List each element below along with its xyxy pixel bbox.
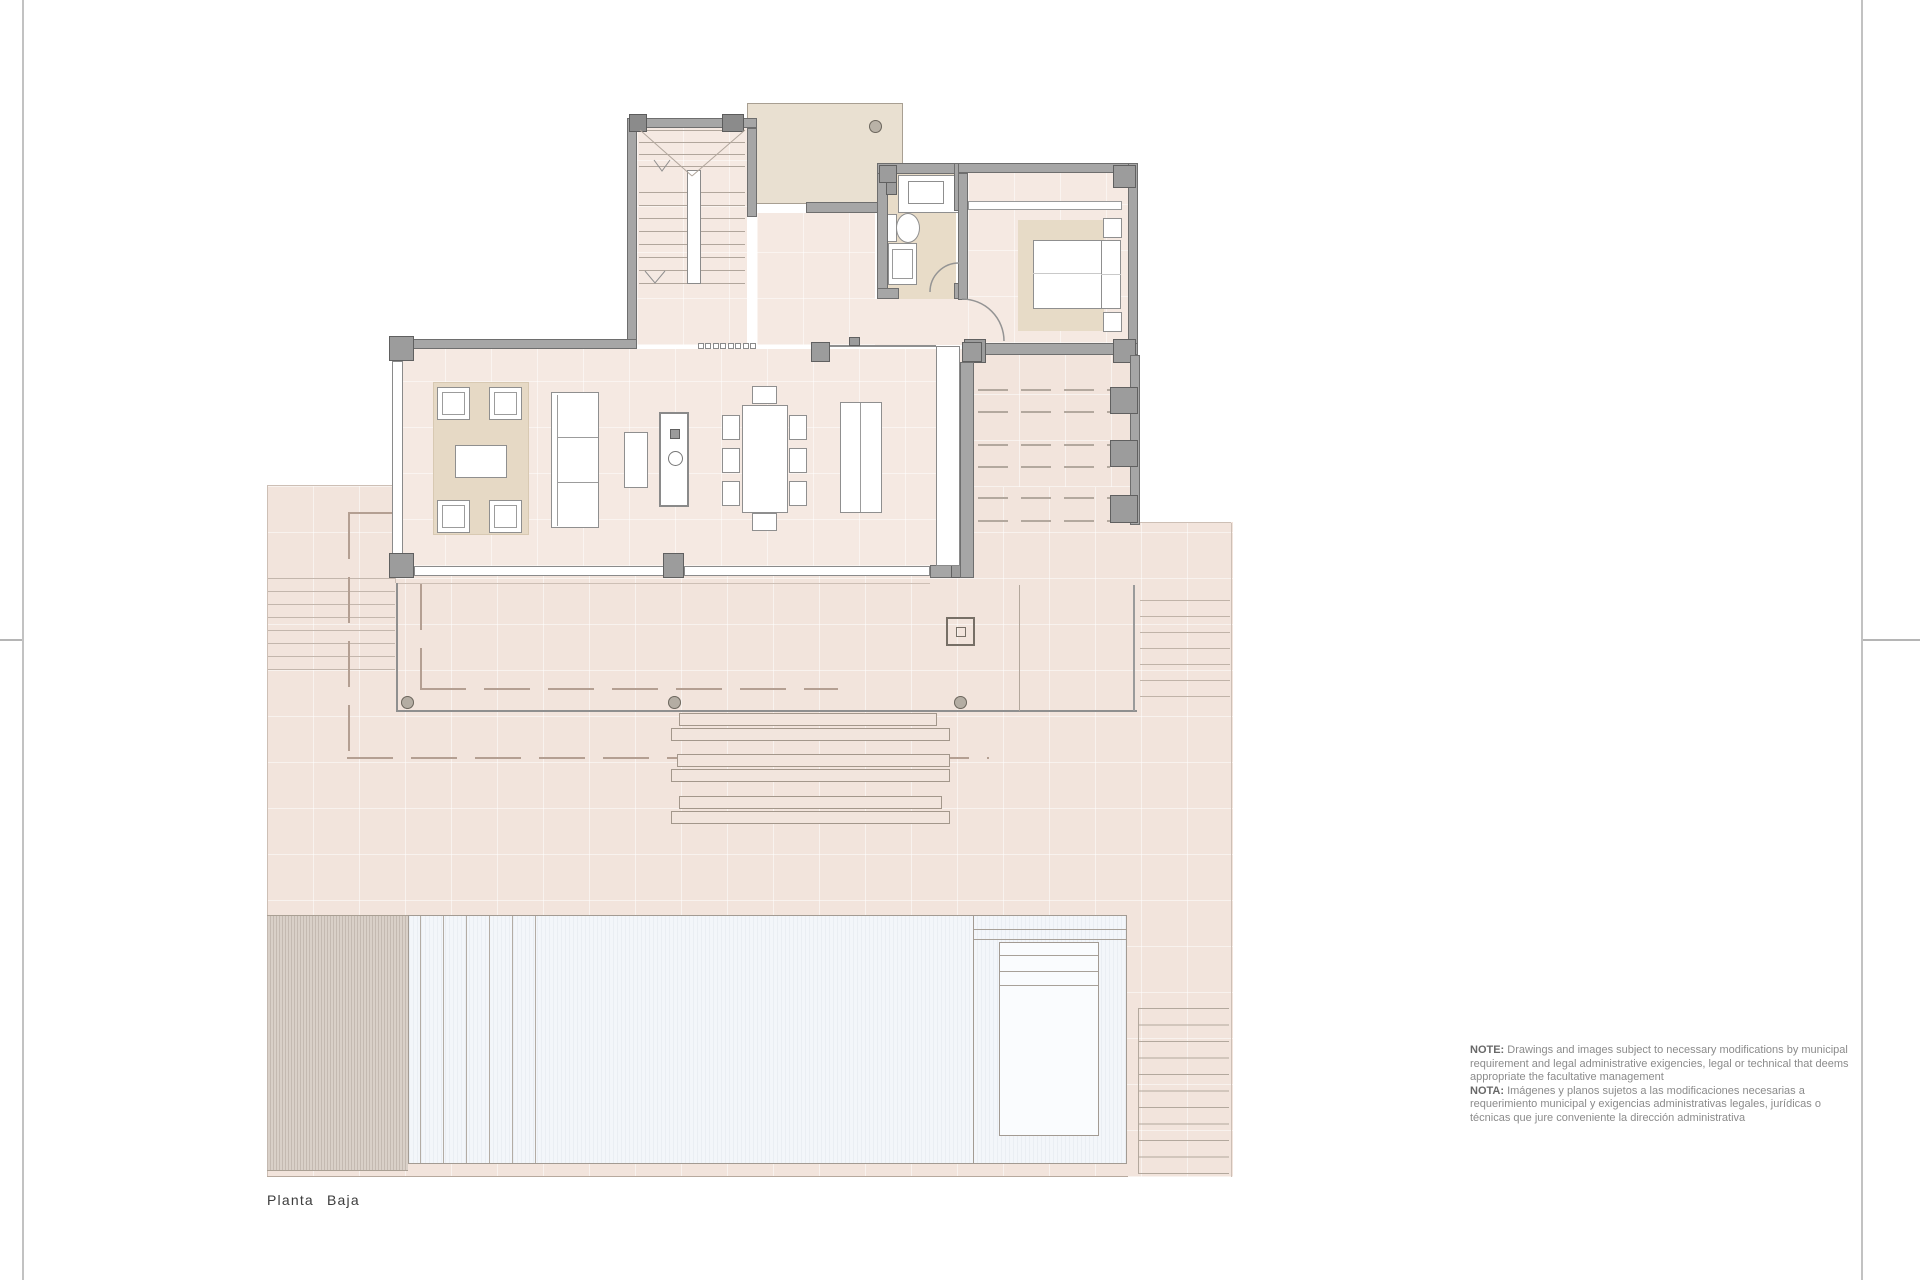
plan-title: Planta Baja [267,1192,360,1208]
note-en-label: NOTE: [1470,1044,1504,1056]
note-block: NOTE: Drawings and images subject to nec… [1470,1044,1860,1125]
note-english: NOTE: Drawings and images subject to nec… [1470,1044,1860,1085]
stair-winder-diagonal [692,130,745,176]
note-es-label: NOTA: [1470,1085,1504,1097]
stair-direction-arrow [645,271,665,283]
note-en-text: Drawings and images subject to necessary… [1470,1044,1849,1083]
note-es-text: Imágenes y planos sujetos a las modifica… [1470,1085,1821,1124]
bathroom-door-arc [930,263,959,292]
stair-winder-diagonal [640,130,692,176]
note-spanish: NOTA: Imágenes y planos sujetos a las mo… [1470,1085,1860,1126]
bedroom-door-arc [962,299,1004,341]
sheet: { "title_label": "Planta Baja", "note": … [0,0,1920,1280]
stair-direction-arrow [654,160,670,171]
